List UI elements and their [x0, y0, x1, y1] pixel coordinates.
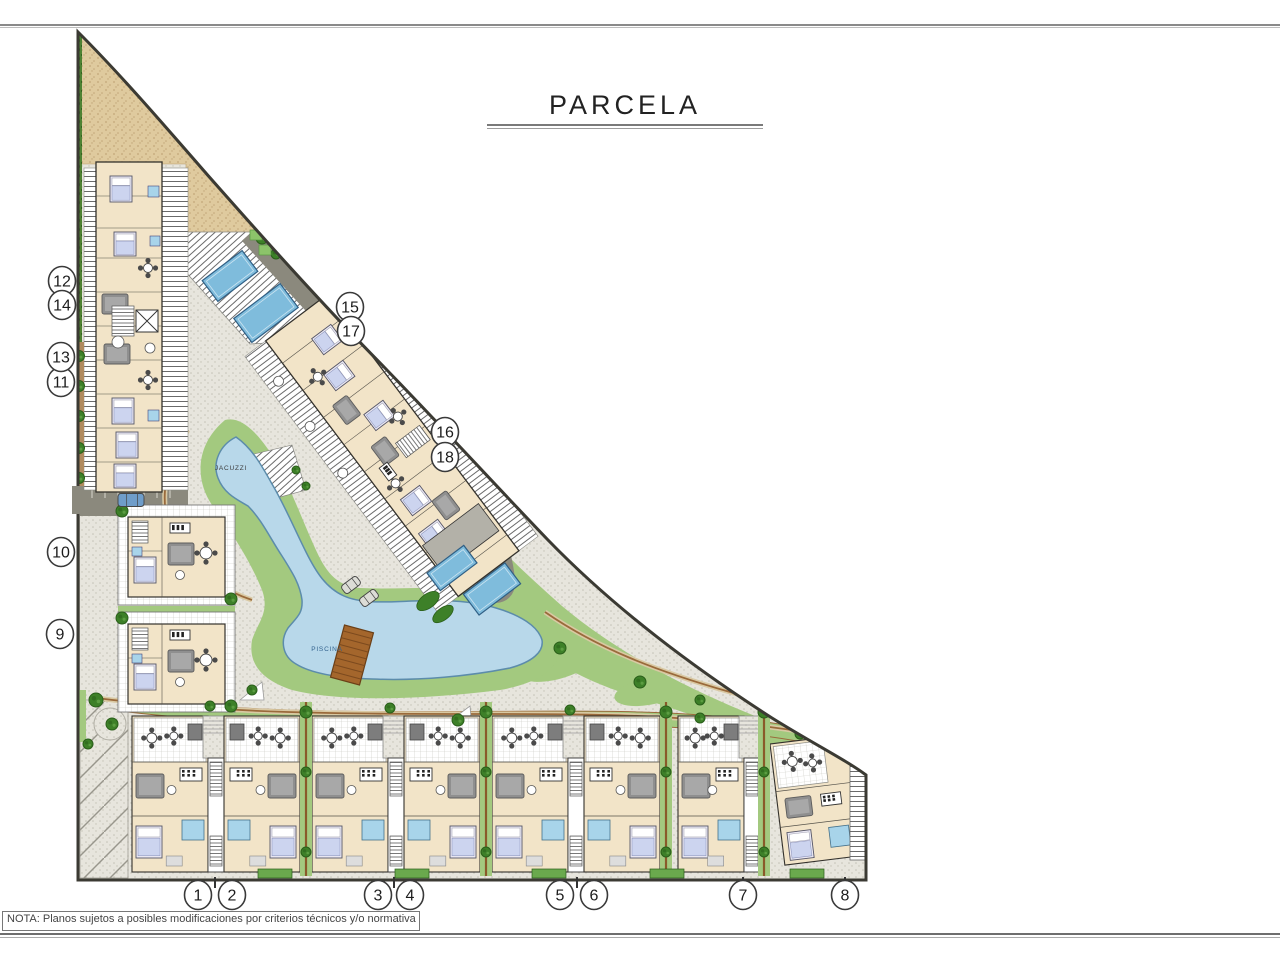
- bed-icon: [134, 664, 156, 690]
- bed-icon: [450, 826, 476, 858]
- townhouse-unit: [678, 716, 744, 872]
- stairs: [746, 762, 758, 796]
- sofa-icon: [628, 774, 656, 798]
- unit-callout-6: 6: [581, 881, 608, 910]
- tree-icon: [481, 767, 491, 777]
- plan-svg: PISCINAJACUZZI12345678910111312141517161…: [0, 0, 1280, 960]
- svg-text:9: 9: [56, 627, 65, 644]
- tree-icon: [301, 847, 311, 857]
- svg-text:13: 13: [52, 350, 70, 367]
- svg-text:4: 4: [406, 888, 415, 905]
- kitchen-icon: [820, 792, 841, 806]
- unit-callout-14: 14: [49, 291, 76, 320]
- bed-icon: [116, 432, 138, 458]
- bed-icon: [110, 176, 132, 202]
- svg-text:12: 12: [53, 274, 71, 291]
- svg-text:2: 2: [228, 888, 237, 905]
- bottom-frame-line-2: [0, 937, 1280, 938]
- kitchen-icon: [410, 768, 432, 781]
- townhouse-unit: [224, 716, 300, 872]
- tree-icon: [83, 739, 93, 749]
- tree-icon: [661, 847, 671, 857]
- hedge-tuft: [650, 869, 684, 878]
- kitchen-icon: [230, 768, 252, 781]
- bed-icon: [270, 826, 296, 858]
- tree-icon: [554, 642, 566, 654]
- sofa-icon: [316, 774, 344, 798]
- kitchen-icon: [180, 768, 202, 781]
- tree-icon: [225, 700, 237, 712]
- svg-text:11: 11: [53, 375, 70, 392]
- note-box: NOTA: Planos sujetos a posibles modifica…: [2, 911, 420, 931]
- sofa-icon: [682, 774, 710, 798]
- tree-icon: [292, 466, 300, 474]
- stairs: [570, 836, 582, 866]
- page-title: PARCELA: [487, 90, 763, 121]
- unit-callout-7: 7: [730, 881, 757, 910]
- stairs: [210, 762, 222, 796]
- svg-text:10: 10: [52, 545, 70, 562]
- elevator-icon: [136, 310, 158, 332]
- hedge-tuft: [258, 869, 292, 878]
- tree-icon: [116, 612, 128, 624]
- tree-icon: [660, 706, 672, 718]
- hedge-tuft: [532, 869, 566, 878]
- townhouse-unit: [312, 716, 388, 872]
- tree-icon: [481, 847, 491, 857]
- svg-text:5: 5: [556, 888, 565, 905]
- tree-icon: [815, 731, 825, 741]
- svg-text:14: 14: [53, 298, 71, 315]
- tree-icon: [759, 847, 769, 857]
- tree-icon: [385, 703, 395, 713]
- tree-icon: [661, 767, 671, 777]
- stairs: [210, 836, 222, 866]
- bed-icon: [114, 232, 136, 256]
- bed-icon: [134, 557, 156, 583]
- unit-callout-3: 3: [365, 881, 392, 910]
- kitchen-icon: [170, 630, 190, 640]
- bed-icon: [112, 398, 134, 424]
- stairs: [390, 762, 402, 796]
- svg-text:15: 15: [341, 300, 359, 317]
- bed-icon: [316, 826, 342, 858]
- stairs: [132, 521, 148, 543]
- stairs: [132, 628, 148, 650]
- svg-text:1: 1: [194, 888, 203, 905]
- villa-building: [116, 612, 237, 712]
- title-underline-1: [487, 124, 763, 126]
- townhouse-unit: [584, 716, 660, 872]
- unit-callout-10: 10: [48, 538, 75, 567]
- kitchen-icon: [590, 768, 612, 781]
- sofa-icon: [136, 774, 164, 798]
- svg-text:18: 18: [436, 450, 454, 467]
- stairs: [112, 306, 134, 336]
- tree-icon: [302, 482, 310, 490]
- tree-icon: [247, 685, 257, 695]
- kitchen-icon: [540, 768, 562, 781]
- tree-icon: [695, 713, 705, 723]
- sofa-icon: [448, 774, 476, 798]
- tree-icon: [301, 767, 311, 777]
- unit-callout-5: 5: [547, 881, 574, 910]
- townhouse-unit: [132, 716, 208, 872]
- bed-icon: [630, 826, 656, 858]
- tree-icon: [106, 718, 118, 730]
- piscina-label: PISCINA: [311, 646, 343, 653]
- hedge-tuft: [790, 869, 824, 878]
- site-plan-page: PISCINAJACUZZI12345678910111312141517161…: [0, 0, 1280, 960]
- bed-icon: [682, 826, 708, 858]
- unit-callout-2: 2: [219, 881, 246, 910]
- stairs: [390, 836, 402, 866]
- stairs: [746, 836, 758, 866]
- sofa-icon: [785, 795, 813, 818]
- unit-callout-18: 18: [432, 443, 459, 472]
- unit-callout-1: 1: [185, 881, 212, 910]
- bottom-frame-line-1: [0, 933, 1280, 935]
- svg-text:16: 16: [436, 425, 454, 442]
- svg-text:17: 17: [342, 324, 360, 341]
- tree-icon: [225, 593, 237, 605]
- sofa-icon: [496, 774, 524, 798]
- jacuzzi-label: JACUZZI: [215, 465, 247, 472]
- tree-icon: [452, 714, 464, 726]
- apartment-building-west: [84, 162, 188, 492]
- title-underline-2: [487, 128, 763, 129]
- townhouse-unit: [404, 716, 480, 872]
- bed-icon: [136, 826, 162, 858]
- kitchen-icon: [716, 768, 738, 781]
- tree-icon: [634, 676, 646, 688]
- hedge-tuft: [395, 869, 429, 878]
- svg-text:8: 8: [841, 888, 850, 905]
- unit-callout-9: 9: [47, 620, 74, 649]
- tree-icon: [759, 767, 769, 777]
- tree-icon: [565, 705, 575, 715]
- tree-icon: [205, 701, 215, 711]
- bed-icon: [787, 830, 814, 861]
- townhouse-unit: [492, 716, 568, 872]
- svg-text:3: 3: [374, 888, 383, 905]
- unit-callout-8: 8: [832, 881, 859, 910]
- tree-icon: [300, 706, 312, 718]
- unit-callout-17: 17: [338, 317, 365, 346]
- bed-icon: [496, 826, 522, 858]
- stairs: [570, 762, 582, 796]
- kitchen-icon: [360, 768, 382, 781]
- svg-text:6: 6: [590, 888, 599, 905]
- villa-building: [116, 505, 237, 605]
- unit-callout-4: 4: [397, 881, 424, 910]
- unit-callout-13: 13: [48, 343, 75, 372]
- sofa-icon: [168, 543, 194, 565]
- sofa-icon: [168, 650, 194, 672]
- sofa-icon: [268, 774, 296, 798]
- tree-icon: [695, 695, 705, 705]
- svg-text:7: 7: [739, 888, 748, 905]
- bed-icon: [114, 464, 136, 488]
- kitchen-icon: [170, 523, 190, 533]
- tree-icon: [480, 706, 492, 718]
- car-icon: [118, 494, 144, 507]
- tree-icon: [89, 693, 103, 707]
